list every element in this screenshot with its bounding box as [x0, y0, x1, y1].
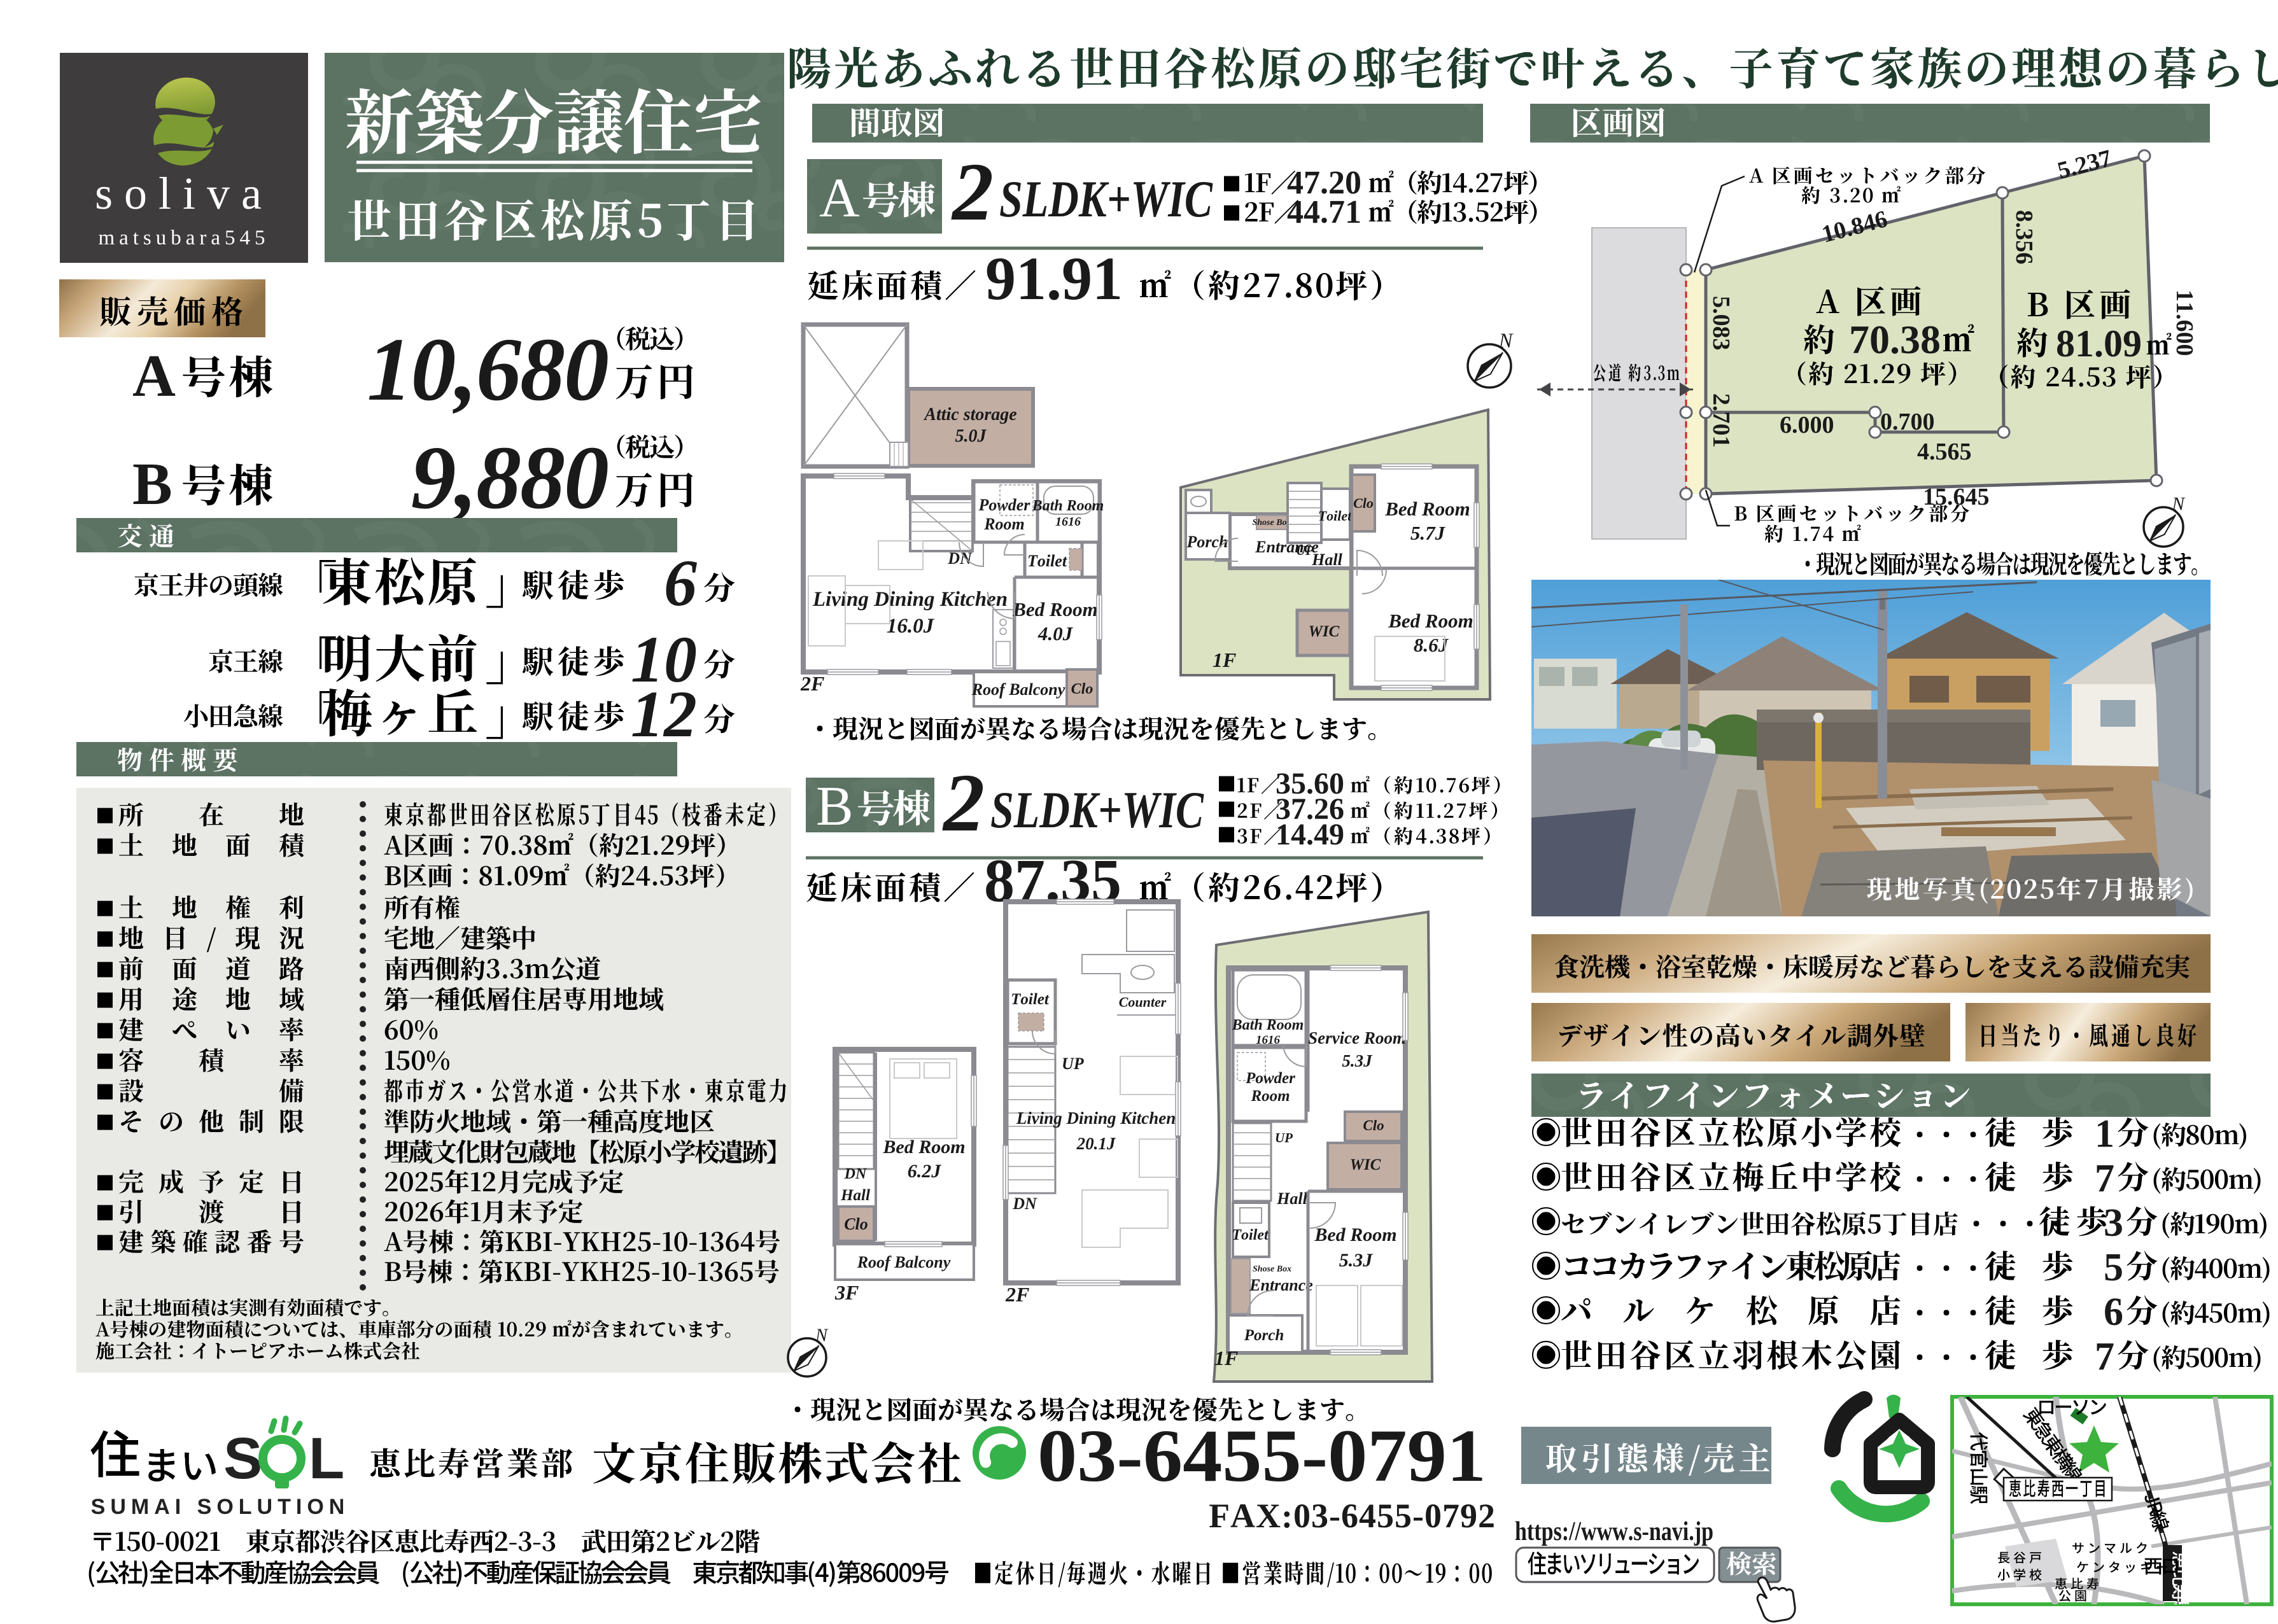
svg-text:1616: 1616 — [1055, 515, 1081, 529]
svg-text:SLDK+WIC: SLDK+WIC — [999, 170, 1213, 228]
svg-text:FAX:03-6455-0792: FAX:03-6455-0792 — [1209, 1497, 1496, 1535]
svg-text:81.09: 81.09 — [2056, 323, 2142, 365]
svg-text:1: 1 — [2095, 1112, 2114, 1156]
svg-text:14.49: 14.49 — [1276, 818, 1344, 851]
svg-text:Living Dining Kitchen: Living Dining Kitchen — [1016, 1109, 1176, 1128]
svg-text:5.3J: 5.3J — [1339, 1250, 1374, 1271]
svg-text:4.565: 4.565 — [1917, 438, 1972, 465]
svg-text:S: S — [223, 1426, 262, 1491]
svg-text:5.3J: 5.3J — [1342, 1051, 1373, 1070]
svg-text:3: 3 — [2104, 1201, 2123, 1245]
svg-text:Hall: Hall — [840, 1187, 870, 1204]
svg-text:Room: Room — [983, 515, 1025, 533]
svg-text:DN: DN — [947, 549, 973, 568]
svg-text:Hall: Hall — [1311, 550, 1342, 569]
svg-text:Porch: Porch — [1244, 1327, 1284, 1344]
svg-text:Toilet: Toilet — [1318, 508, 1352, 524]
svg-text:4.0J: 4.0J — [1037, 622, 1074, 645]
svg-text:5.7J: 5.7J — [1410, 522, 1446, 544]
svg-text:WIC: WIC — [1309, 623, 1340, 640]
svg-text:Clo: Clo — [1353, 495, 1374, 511]
svg-text:A: A — [132, 343, 176, 409]
svg-text:Attic storage: Attic storage — [923, 405, 1016, 424]
svg-text:5.0J: 5.0J — [955, 426, 987, 446]
svg-text:12: 12 — [631, 678, 697, 751]
svg-text:2: 2 — [951, 146, 994, 238]
svg-text:B: B — [132, 451, 172, 517]
svg-text:Bed Room: Bed Room — [882, 1137, 965, 1158]
svg-text:Toilet: Toilet — [1027, 552, 1067, 570]
svg-text:Toilet: Toilet — [1232, 1227, 1269, 1243]
svg-text:2.701: 2.701 — [1708, 393, 1734, 448]
svg-text:WIC: WIC — [1350, 1156, 1381, 1173]
svg-text:DN: DN — [1012, 1194, 1037, 1213]
svg-text:7: 7 — [2095, 1157, 2114, 1200]
svg-text:Hall: Hall — [1276, 1189, 1307, 1208]
svg-text:UP: UP — [1275, 1130, 1293, 1145]
svg-text:UP: UP — [1062, 1054, 1085, 1073]
svg-text:Powder: Powder — [1245, 1070, 1295, 1087]
svg-text:Bed Room: Bed Room — [1384, 498, 1470, 520]
svg-text:Bath Room: Bath Room — [1032, 498, 1104, 514]
svg-text:70.38: 70.38 — [1849, 317, 1941, 362]
svg-text:matsubara545: matsubara545 — [98, 227, 269, 249]
svg-text:Clo: Clo — [1363, 1117, 1384, 1133]
svg-text:N: N — [2171, 494, 2185, 515]
svg-text:5.083: 5.083 — [1708, 296, 1734, 351]
svg-text:soliva: soliva — [95, 168, 273, 219]
svg-text:Toilet: Toilet — [1011, 991, 1050, 1008]
svg-text:Shose Box: Shose Box — [1252, 518, 1291, 528]
svg-text:Counter: Counter — [1119, 994, 1167, 1010]
svg-text:8.6J: 8.6J — [1414, 634, 1449, 656]
svg-text:6: 6 — [664, 547, 697, 620]
svg-text:Bed Room: Bed Room — [1388, 610, 1473, 632]
svg-text:Roof Balcony: Roof Balcony — [971, 680, 1065, 699]
svg-text:10,680: 10,680 — [367, 319, 608, 419]
svg-text:Bath Room: Bath Room — [1232, 1017, 1304, 1033]
svg-text:Powder: Powder — [978, 496, 1031, 514]
svg-text:2F: 2F — [800, 672, 824, 695]
svg-text:6.2J: 6.2J — [908, 1161, 942, 1182]
svg-text:Clo: Clo — [1071, 681, 1093, 697]
svg-text:Clo: Clo — [844, 1215, 868, 1233]
svg-text:https://www.s-navi.jp: https://www.s-navi.jp — [1515, 1517, 1713, 1546]
svg-text:03-6455-0791: 03-6455-0791 — [1037, 1414, 1486, 1497]
svg-text:SLDK+WIC: SLDK+WIC — [990, 781, 1204, 839]
svg-text:91.91: 91.91 — [985, 244, 1123, 312]
svg-text:UP: UP — [1296, 543, 1314, 558]
svg-text:Roof Balcony: Roof Balcony — [857, 1253, 951, 1271]
svg-text:8.356: 8.356 — [2011, 210, 2037, 265]
svg-text:1616: 1616 — [1256, 1033, 1281, 1047]
svg-text:1F: 1F — [1214, 1347, 1238, 1369]
svg-text:2: 2 — [942, 757, 985, 849]
svg-text:DN: DN — [844, 1166, 868, 1182]
svg-text:Bed Room: Bed Room — [1314, 1224, 1396, 1245]
svg-text:Porch: Porch — [1186, 533, 1228, 551]
svg-text:N: N — [815, 1326, 829, 1346]
svg-text:Service Room: Service Room — [1308, 1028, 1406, 1047]
svg-text:L: L — [309, 1426, 344, 1491]
svg-text:16.0J: 16.0J — [887, 615, 935, 638]
svg-text:9,880: 9,880 — [411, 427, 608, 528]
svg-text:Shose Box: Shose Box — [1253, 1264, 1291, 1274]
svg-text:B: B — [816, 776, 854, 837]
svg-text:7: 7 — [2095, 1335, 2114, 1378]
svg-text:SUMAI SOLUTION: SUMAI SOLUTION — [91, 1495, 350, 1519]
svg-text:Entrance: Entrance — [1249, 1276, 1313, 1294]
svg-text:11.600: 11.600 — [2171, 290, 2198, 356]
svg-text:6: 6 — [2104, 1291, 2123, 1334]
svg-text:6.000: 6.000 — [1780, 412, 1834, 438]
svg-text:Living Dining Kitchen: Living Dining Kitchen — [812, 588, 1008, 611]
svg-text:N: N — [1498, 329, 1514, 352]
svg-text:Bed Room: Bed Room — [1012, 598, 1097, 620]
svg-text:3F: 3F — [834, 1281, 859, 1304]
svg-text:2F: 2F — [1005, 1283, 1029, 1306]
svg-text:20.1J: 20.1J — [1076, 1134, 1116, 1153]
svg-text:5: 5 — [2104, 1246, 2123, 1289]
svg-text:Room: Room — [1250, 1088, 1290, 1105]
svg-text:0.700: 0.700 — [1880, 409, 1935, 435]
svg-text:1F: 1F — [1213, 648, 1236, 671]
svg-text:44.71: 44.71 — [1287, 194, 1361, 230]
svg-text:A: A — [819, 167, 860, 229]
